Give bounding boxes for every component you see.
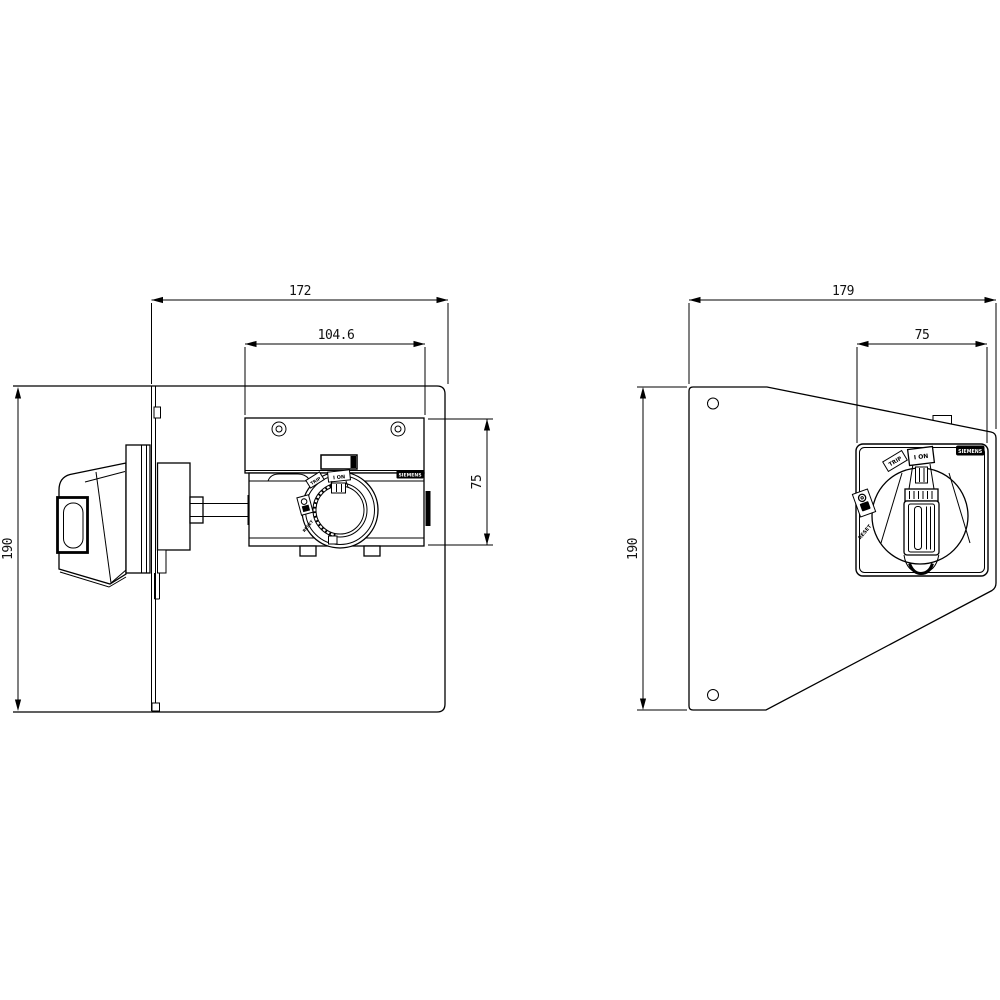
mounting-hole-bottom [708,690,719,701]
dial-on-window: I ON [328,470,351,482]
brand-label-front: SIEMENS [958,449,983,455]
dim-text-104-6: 104.6 [318,328,355,343]
dim-text-190-side: 190 [1,538,16,560]
drive-housing [155,463,253,599]
dimension-device-height: 75 [428,419,493,545]
grip-slot [915,507,922,550]
side-terminal-bar [426,491,431,526]
on-position-label: I ON [908,447,935,466]
bottom-tab-right [364,546,380,556]
dim-text-75-front: 75 [915,328,930,343]
dim-text-179: 179 [832,284,854,299]
rotary-handle-side [58,445,151,587]
pointer-window [916,467,928,483]
on-label-small: I ON [333,474,346,481]
dimension-total-width-side: 172 [152,284,449,384]
dim-text-190-front: 190 [626,538,641,560]
nameplate-mark [351,456,357,468]
dimension-panel-height-side: 190 [1,387,21,711]
bottom-tab-left [300,546,316,556]
side-view: SIEMENS I ON TRIP [1,284,493,712]
dim-text-172: 172 [289,284,311,299]
dimension-plate-width: 75 [857,328,987,443]
dial-bottom-window [329,536,338,544]
mounting-hole-top [708,398,719,409]
drawing-canvas: SIEMENS I ON TRIP [0,0,1000,1000]
shaft-coupling [190,497,203,523]
operator-plate: I ON TRIP RESET SIEMENS [852,444,988,576]
front-view: I ON TRIP RESET SIEMENS 179 [626,284,996,710]
technical-drawing: SIEMENS I ON TRIP [0,0,1000,1000]
handle-grip-slot [64,503,84,548]
breaker-body: SIEMENS I ON TRIP [245,418,431,556]
dim-text-75-side: 75 [470,475,485,490]
wall-bottom-foot [152,703,160,711]
wall-top-clip [154,407,161,418]
dimension-device-width: 104.6 [245,328,425,415]
dimension-total-width-front: 179 [689,284,996,429]
dimension-panel-height-front: 190 [626,387,687,710]
brand-label-side: SIEMENS [398,473,421,479]
